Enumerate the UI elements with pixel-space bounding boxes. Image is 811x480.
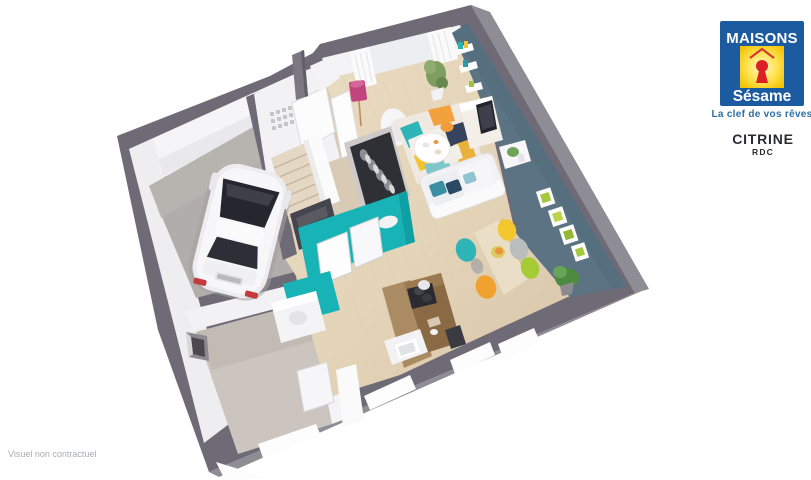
svg-text:RDC: RDC [752, 147, 774, 157]
svg-text:La clef de vos rêves: La clef de vos rêves [711, 109, 811, 120]
svg-text:Sésame: Sésame [733, 88, 792, 105]
svg-text:CITRINE: CITRINE [732, 131, 794, 147]
svg-text:MAISONS: MAISONS [726, 30, 797, 47]
svg-text:Visuel non contractuel: Visuel non contractuel [8, 449, 96, 459]
